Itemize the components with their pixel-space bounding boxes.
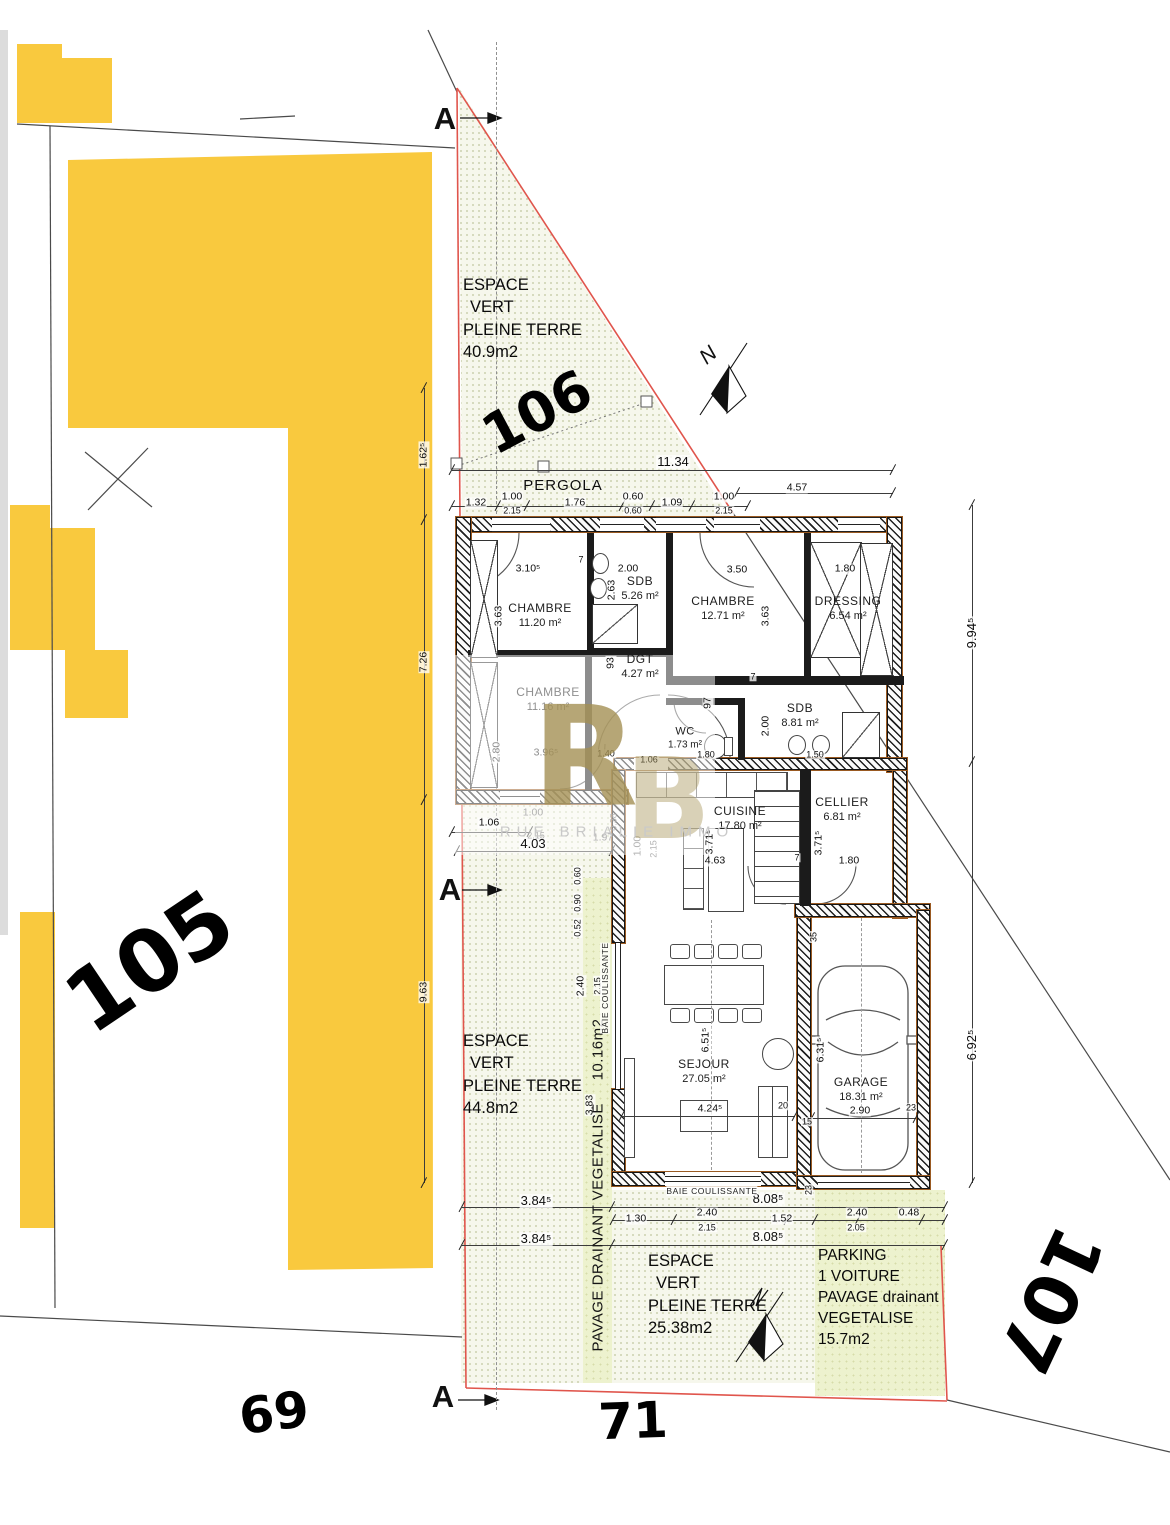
dim: 1.52 [771,1213,793,1224]
dim: 93 [605,656,616,670]
room-area: 12.71 m² [691,610,755,622]
street-number-69: 69 [236,1380,312,1446]
dim: 2.90 [849,1105,871,1116]
dim: 3.71⁵ [813,830,824,857]
label-line: ESPACE [463,274,582,296]
dimline [452,470,893,471]
room-name: SDB [621,574,658,588]
room-garage: GARAGE 18.31 m² [834,1075,888,1103]
room-area: 8.81 m² [781,717,818,729]
survey-cross [85,448,152,510]
dim: 2.15 [502,506,522,515]
wall-cuisine-cellier [800,770,811,906]
wardrobe-chambre1 [470,540,498,658]
sink-sdb1-b [590,578,607,599]
label-area: 15.7m2 [818,1329,939,1350]
car-top-view [809,966,917,1170]
watermark-letter-r: R [532,677,638,838]
dim: 3.84⁵ [520,1232,553,1246]
dim: 1.06 [478,817,500,828]
dimline [812,1118,916,1119]
room-dressing: DRESSING 6.54 m² [815,594,882,622]
dim: 8.08⁵ [752,1230,785,1244]
dimline [622,1116,795,1117]
strip-text: PAVAGE DRAINANT VEGETALISE [590,1103,607,1351]
room-area: 5.26 m² [621,590,658,602]
dim: 1.30 [625,1213,647,1224]
label-area: 25.38m2 [648,1317,767,1339]
dim: 1.09 [661,497,683,508]
wall-north-garage [795,904,930,917]
sink-sdb1-a [592,553,609,574]
dim: 35 [809,931,818,943]
garage-door [818,1176,910,1189]
shower-sdb1 [592,604,638,644]
baie-coulissante-label-south: BAIE COULISSANTE [666,1186,757,1196]
room-name: CHAMBRE [508,601,572,615]
chair [718,944,738,959]
dimline [424,388,425,1183]
sink-sdb2-a [788,735,806,755]
room-name: SDB [781,701,818,715]
shower-sdb2 [842,712,880,758]
tv-unit [624,1058,635,1158]
dim: 9.63 [418,981,429,1003]
dim: 3.10⁵ [515,563,542,574]
parking-label: PARKING 1 VOITURE PAVAGE drainant VEGETA… [818,1245,939,1350]
label-line: PAVAGE drainant [818,1287,939,1308]
pergola-label: PERGOLA [522,478,604,494]
dim-total-width: 11.34 [656,455,690,469]
dim: 0.52 [573,918,582,938]
room-name: GARAGE [834,1075,888,1089]
dim: 3.63 [760,605,771,627]
label-line: PARKING [818,1245,939,1266]
espace-vert-top-label: ESPACE VERT PLEINE TERRE 40.9m2 [463,274,582,364]
room-name: DGT [621,652,658,666]
baie-coulissante-label-west: BAIE COULISSANTE [600,942,610,1033]
dim: 6.31⁵ [815,1037,826,1064]
room-sdb2: SDB 8.81 m² [781,701,818,729]
baie-coulissante-west [615,943,621,1089]
label-line: VEGETALISE [818,1308,939,1329]
label-line: VERT [463,1052,582,1074]
dim-wall: 7 [577,555,584,564]
window-sdb1 [600,517,644,532]
room-area: 6.81 m² [815,811,869,823]
dim: 1.80 [838,855,860,866]
label-line: ESPACE [648,1250,767,1272]
dim: 2.00 [760,715,771,737]
dim: 4.57 [786,482,808,493]
dim: 2.80 [491,741,502,763]
label-line: VERT [463,296,582,318]
section-marker-a-top: A [434,101,456,137]
dim: 3.63 [493,605,504,627]
dim: 2.15 [697,1223,717,1232]
dim: 2.40 [846,1207,868,1218]
room-area: 6.54 m² [815,610,882,622]
dim: 6.92⁵ [965,1029,979,1062]
dim: 3.84⁵ [520,1194,553,1208]
dim: 0.60 [622,491,644,502]
room-chambre1: CHAMBRE 11.20 m² [508,601,572,629]
dim: 15 [801,1117,813,1126]
sofa [758,1086,788,1158]
watermark-text: RUE BRIALIE IMMO [500,824,734,841]
room-sdb1: SDB 5.26 m² [621,574,658,602]
section-marker-a-middle: A [439,872,461,908]
north-letter: N [695,341,722,369]
dining-table [664,965,764,1005]
dim: 2.05 [846,1223,866,1232]
toilet-tank [724,737,733,756]
dim: 2.63 [606,579,617,601]
espace-vert-left-label: ESPACE VERT PLEINE TERRE 44.8m2 [463,1030,582,1120]
dim: 7.26 [418,651,429,673]
chair [718,1008,738,1023]
window-chambre1 [492,517,550,532]
label-area: 44.8m2 [463,1097,582,1119]
label-line: VERT [648,1272,767,1294]
dim: 0.60 [573,866,582,886]
dimline [972,505,973,1183]
dim: 4.24⁵ [697,1103,724,1114]
round-table [762,1038,794,1070]
room-area: 11.20 m² [508,617,572,629]
dim: 20 [777,1101,789,1110]
label-line: PLEINE TERRE [463,319,582,341]
wall-sejour-garage [797,910,811,1186]
espace-vert-bottom-label: ESPACE VERT PLEINE TERRE 25.38m2 [648,1250,767,1340]
dim: 1.00 [501,491,523,502]
baie-coulissante-south [665,1176,761,1182]
watermark-letter-b: B [625,735,710,865]
pavage-strip-label: PAVAGE DRAINANT VEGETALISE 10.16m2 [590,1010,607,1361]
dim: 1.62⁵ [418,442,429,469]
room-name: CHAMBRE [691,594,755,608]
wall-east-cellier [893,758,907,918]
window-chambre2 [714,517,760,532]
north-arrow-top: N [695,341,747,415]
chair [742,1008,762,1023]
dim: 0.48 [898,1207,920,1218]
dim: 6.51⁵ [700,1027,711,1054]
chair [670,1008,690,1023]
garage-axis [861,918,862,1173]
label-line: ESPACE [463,1030,582,1052]
yellow-buildings [10,44,433,1270]
chair [670,944,690,959]
site-plan-canvas: N [0,0,1170,1525]
dim: 2.15 [714,506,734,515]
dim: 1.32 [465,497,487,508]
chair [742,944,762,959]
room-name: SEJOUR [678,1057,730,1071]
label-line: 1 VOITURE [818,1266,939,1287]
wall-east-garage [917,910,930,1189]
dim: 2.00 [617,563,639,574]
wall-wc-right [738,698,745,760]
label-line: PLEINE TERRE [463,1075,582,1097]
dim: 2.40 [575,975,586,997]
window-dressing [838,517,880,532]
label-line: PLEINE TERRE [648,1295,767,1317]
street-number-71: 71 [597,1391,669,1451]
window-hall [656,517,706,532]
dim: 1.00 [713,491,735,502]
room-name: DRESSING [815,594,882,608]
dim: 9.94⁵ [965,617,979,650]
dim: 0.90 [573,893,582,913]
dim: 1.50 [805,750,825,759]
dim: 2.40 [696,1207,718,1218]
dimline [737,493,893,494]
dim: 23 [804,1184,813,1196]
dim: 0.60 [623,506,643,515]
room-chambre2: CHAMBRE 12.71 m² [691,594,755,622]
dim-wall: 7 [749,672,756,681]
dim: 3.50 [726,564,748,575]
room-area: 18.31 m² [834,1091,888,1103]
room-sejour: SEJOUR 27.05 m² [678,1057,730,1085]
room-cellier: CELLIER 6.81 m² [815,795,869,823]
dim: 1.76 [564,497,586,508]
dim: 23 [905,1103,917,1112]
room-name: CUISINE [714,804,766,818]
dim: 97 [702,696,713,710]
room-name: CELLIER [815,795,869,809]
dim: 1.80 [834,563,856,574]
room-area: 27.05 m² [678,1073,730,1085]
section-marker-a-bottom: A [432,1379,454,1415]
dim-wall: 7 [793,853,800,862]
